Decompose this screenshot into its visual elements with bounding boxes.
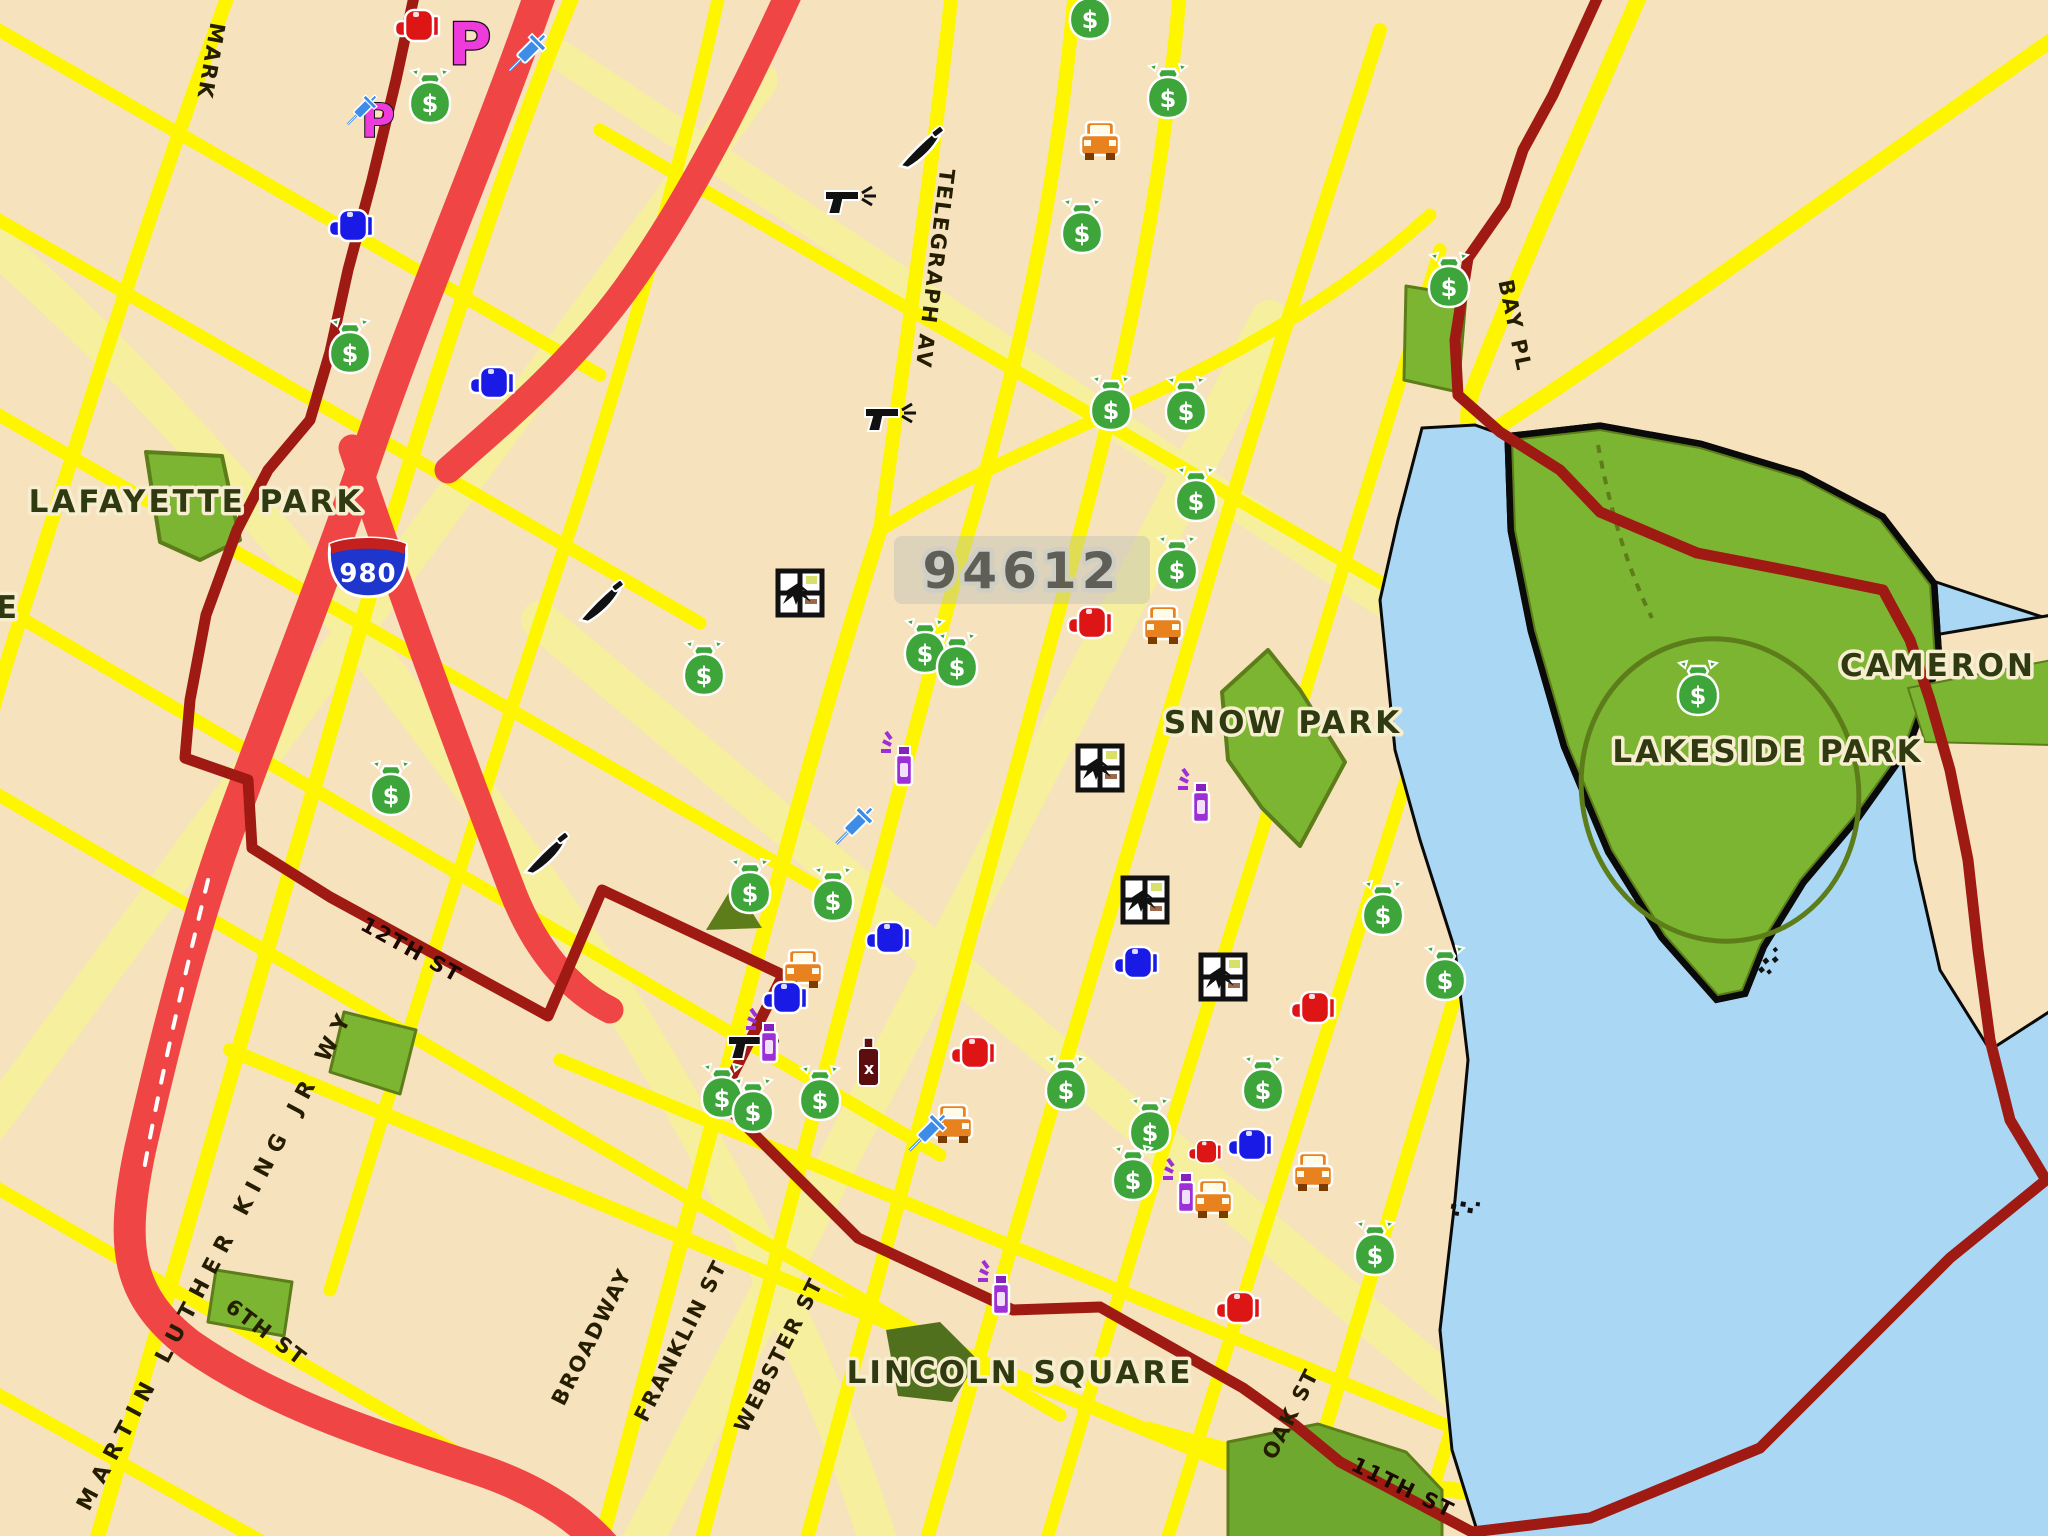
crime-icon-burglary-window[interactable] <box>778 571 822 615</box>
interstate-shield-layer: 980 <box>329 538 406 597</box>
park-lakeside: LAKESIDE PARK <box>1612 734 1923 770</box>
area-cameron-partial: CAMERON <box>1840 648 2036 684</box>
park-lincoln-square: LINCOLN SQUARE <box>847 1355 1194 1391</box>
crime-icon-burglary-window[interactable] <box>1201 955 1245 999</box>
map-canvas: $ <box>0 0 2048 1536</box>
label-fragment-left-edge: E <box>0 590 20 626</box>
crime-icon-car-theft[interactable] <box>1194 1180 1232 1218</box>
crime-icon-burglary-window[interactable] <box>1078 746 1122 790</box>
crime-icon-car-theft[interactable] <box>1144 606 1182 644</box>
crime-map-viewport[interactable]: $ <box>0 0 2048 1536</box>
zip-code-label: 94612 <box>923 542 1122 600</box>
park-lafayette: LAFAYETTE PARK <box>29 484 364 520</box>
crime-icon-car-theft[interactable] <box>1081 122 1119 160</box>
crime-icon-car-theft[interactable] <box>1294 1153 1332 1191</box>
crime-icon-p-letter[interactable] <box>449 10 492 78</box>
crime-icon-burglary-window[interactable] <box>1123 878 1167 922</box>
park-snow: SNOW PARK <box>1164 705 1402 741</box>
interstate-980-shield: 980 <box>329 538 406 597</box>
crime-icon-money-bag[interactable] <box>1070 0 1110 39</box>
shield-number: 980 <box>339 559 396 589</box>
